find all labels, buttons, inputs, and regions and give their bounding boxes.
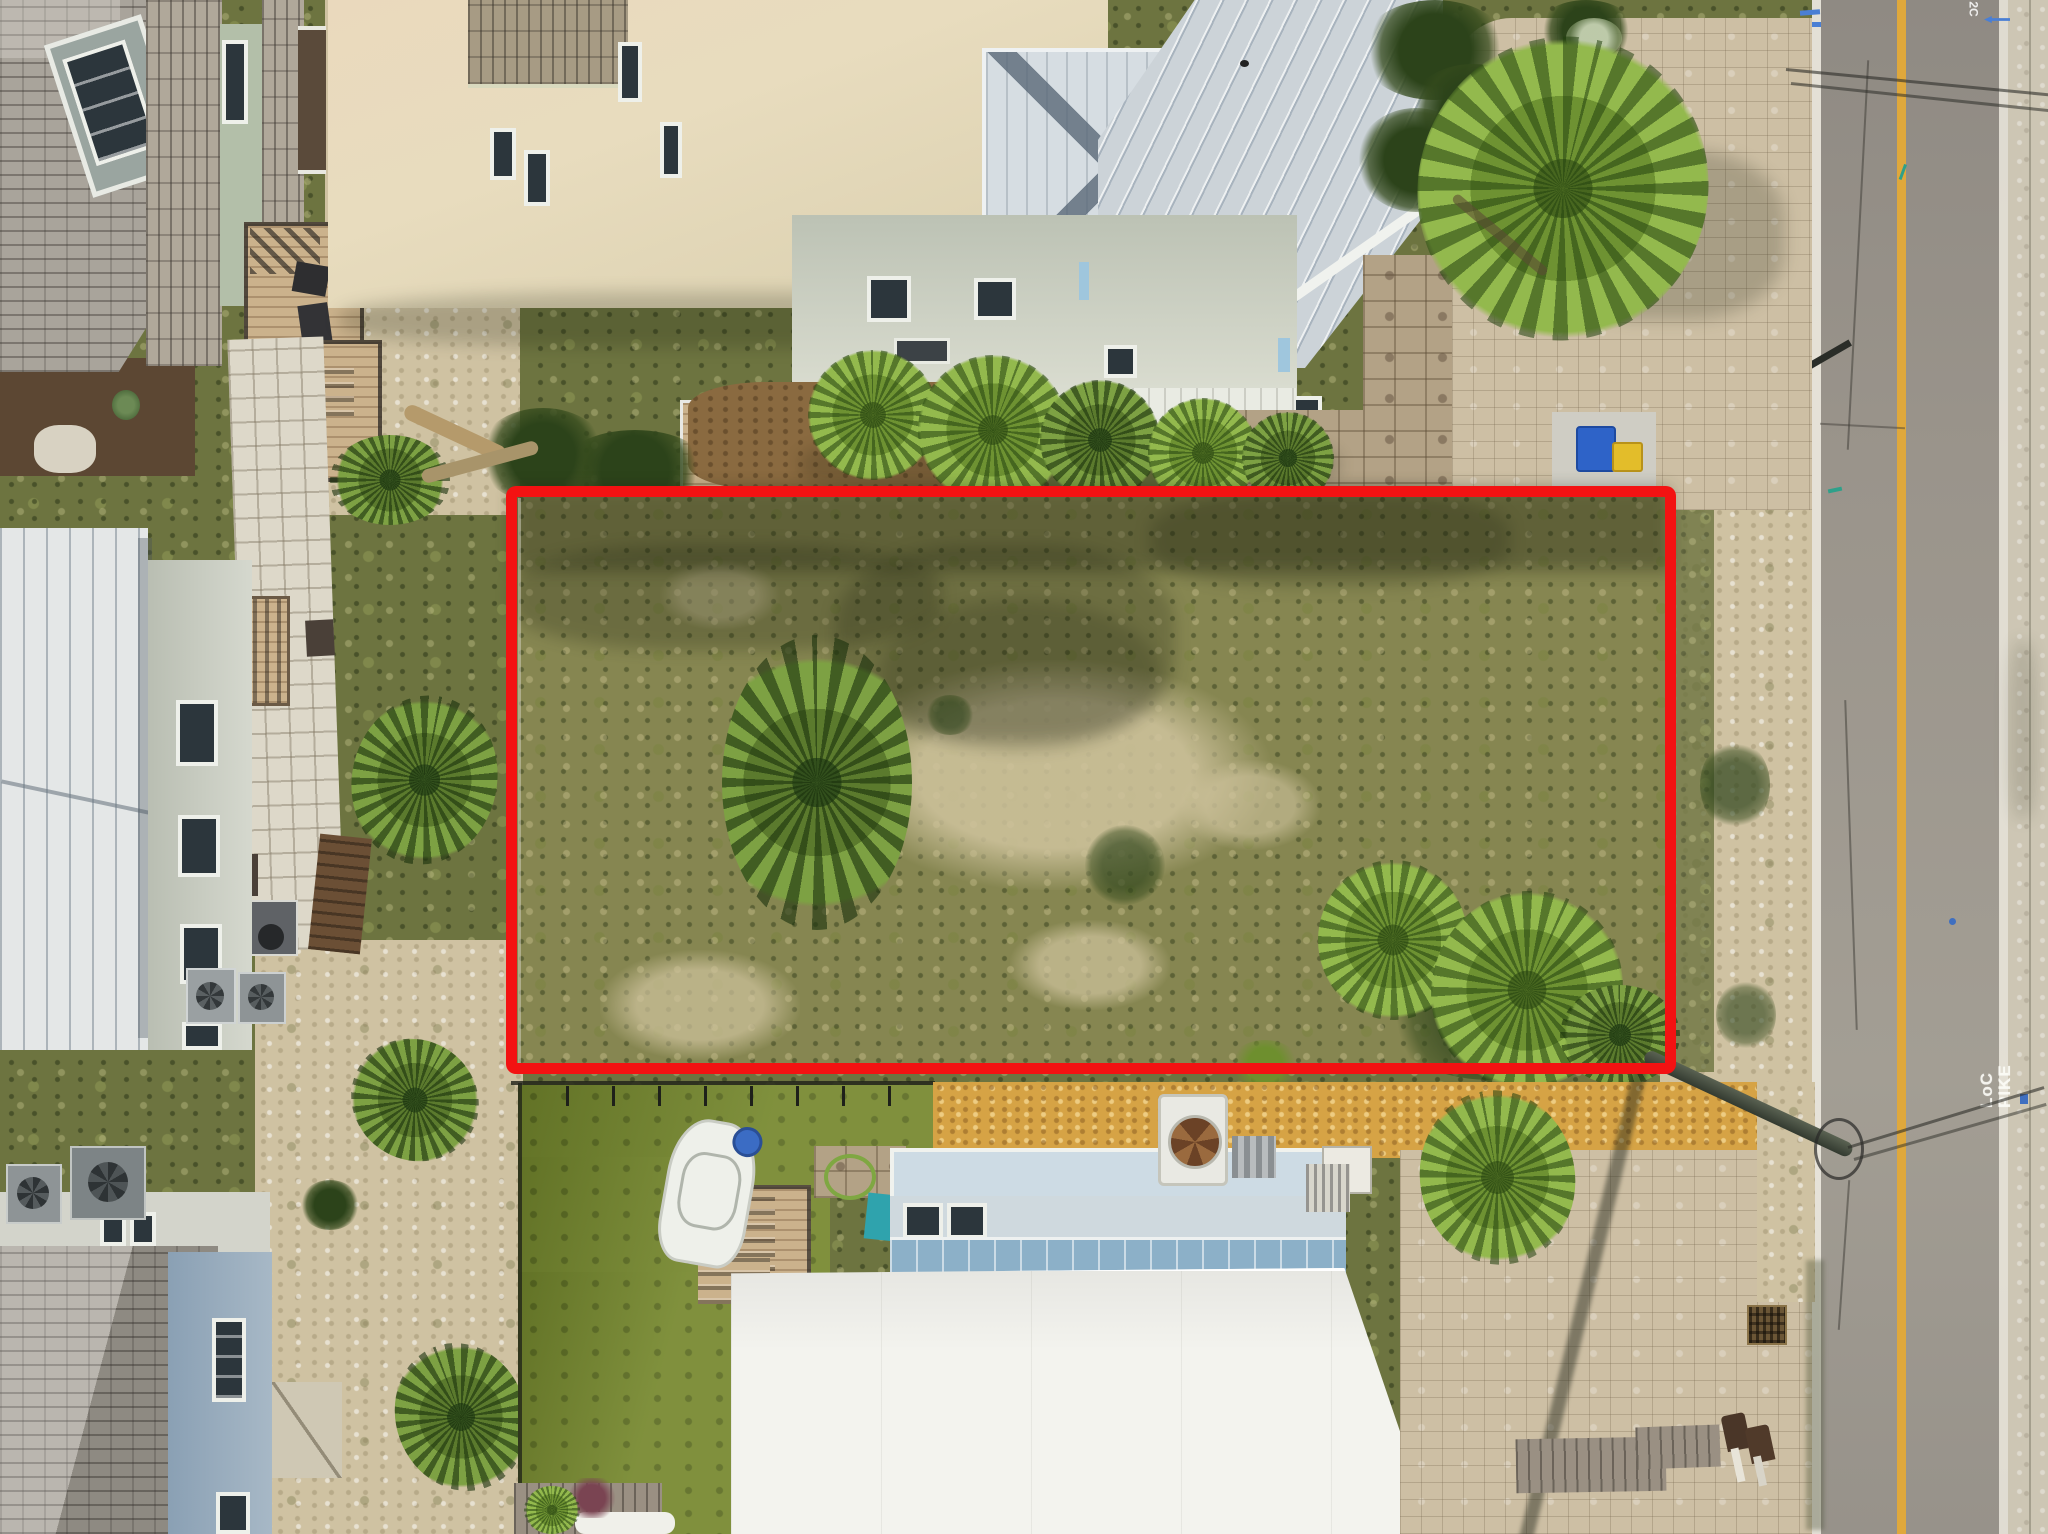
- fence-post: [888, 1086, 891, 1106]
- blue-building-window: [947, 1203, 987, 1239]
- shingle-sidewall-1: [146, 0, 222, 366]
- wire-coil: [1814, 1118, 1864, 1180]
- cream-window: [660, 122, 682, 178]
- fence-post: [658, 1086, 661, 1106]
- ac-fan: [248, 984, 274, 1010]
- cream-window: [524, 150, 550, 206]
- blue-downspout: [1278, 338, 1290, 372]
- metal-house-window: [182, 1022, 222, 1050]
- door-mat: [305, 619, 335, 656]
- mulch-bed: [0, 358, 195, 476]
- fan-blades: [1168, 1115, 1222, 1169]
- cream-window: [618, 42, 642, 102]
- small-yucca: [524, 1486, 580, 1534]
- wall-window: [1104, 345, 1137, 378]
- lower-house-window: [212, 1318, 246, 1402]
- rooftop-ac-unit: [70, 1146, 146, 1220]
- grill-dome: [258, 924, 284, 950]
- blue-downspout: [1079, 262, 1089, 300]
- outdoor-grill: [244, 900, 298, 956]
- brown-window-band: [298, 26, 326, 174]
- patio-chair: [292, 261, 331, 296]
- shoulder-tuft: [1716, 980, 1776, 1050]
- drain-grate: [1747, 1305, 1787, 1345]
- ac-fan: [88, 1162, 128, 1202]
- road-edge-grime: [1806, 1260, 1824, 1530]
- fence-post: [566, 1086, 569, 1106]
- aerial-photo: 2C LoC PIKE: [0, 0, 2048, 1534]
- green-barrel: [112, 390, 140, 420]
- concrete-pad: [272, 1382, 342, 1478]
- blue-building-window: [903, 1203, 943, 1239]
- green-wall-window: [222, 40, 248, 124]
- wall-window: [974, 278, 1016, 320]
- equipment-lattice: [1306, 1164, 1350, 1212]
- shoulder-tuft: [1700, 740, 1770, 830]
- concrete-stain: [2008, 640, 2038, 820]
- dormer-glass: [62, 39, 159, 166]
- blue-paint-dot: [1949, 918, 1956, 925]
- ac-fan: [196, 982, 224, 1010]
- road-centerline-yellow: [1897, 0, 1906, 1534]
- boundary-fence-vertical: [518, 1083, 522, 1534]
- fence-post: [612, 1086, 615, 1106]
- fence-post: [796, 1086, 799, 1106]
- rooftop-fan-unit: [1158, 1094, 1228, 1186]
- bird-on-roof: [1240, 60, 1249, 67]
- brown-mansard-band: [468, 0, 628, 88]
- roof-pipes: [1232, 1136, 1276, 1178]
- rooftop-ac-unit: [6, 1164, 62, 1224]
- blue-trash-bin: [1576, 426, 1616, 472]
- grass-tuft: [300, 1180, 360, 1230]
- road-marking-2c: 2C: [1967, 1, 1981, 16]
- wall-window: [867, 276, 911, 322]
- boundary-fence-horizontal: [511, 1081, 935, 1085]
- white-flat-roof: [731, 1268, 1436, 1534]
- ac-unit: [186, 968, 236, 1024]
- wood-bench: [1635, 1425, 1720, 1470]
- silver-metal-roof: [0, 528, 148, 1050]
- ac-fan: [17, 1177, 49, 1209]
- road-edge-line-right: [1999, 0, 2008, 1534]
- ac-unit: [238, 972, 286, 1024]
- property-boundary: [506, 486, 1676, 1074]
- boat-interior-line: [673, 1149, 745, 1234]
- stone-pile: [34, 425, 96, 473]
- yellow-trash-bin: [1612, 442, 1643, 472]
- metal-house-window: [178, 815, 220, 877]
- fence-post: [750, 1086, 753, 1106]
- cream-window: [490, 128, 516, 180]
- metal-house-window: [176, 700, 218, 766]
- fence-post: [704, 1086, 707, 1106]
- fence-post: [842, 1086, 845, 1106]
- lower-house-window: [216, 1492, 250, 1534]
